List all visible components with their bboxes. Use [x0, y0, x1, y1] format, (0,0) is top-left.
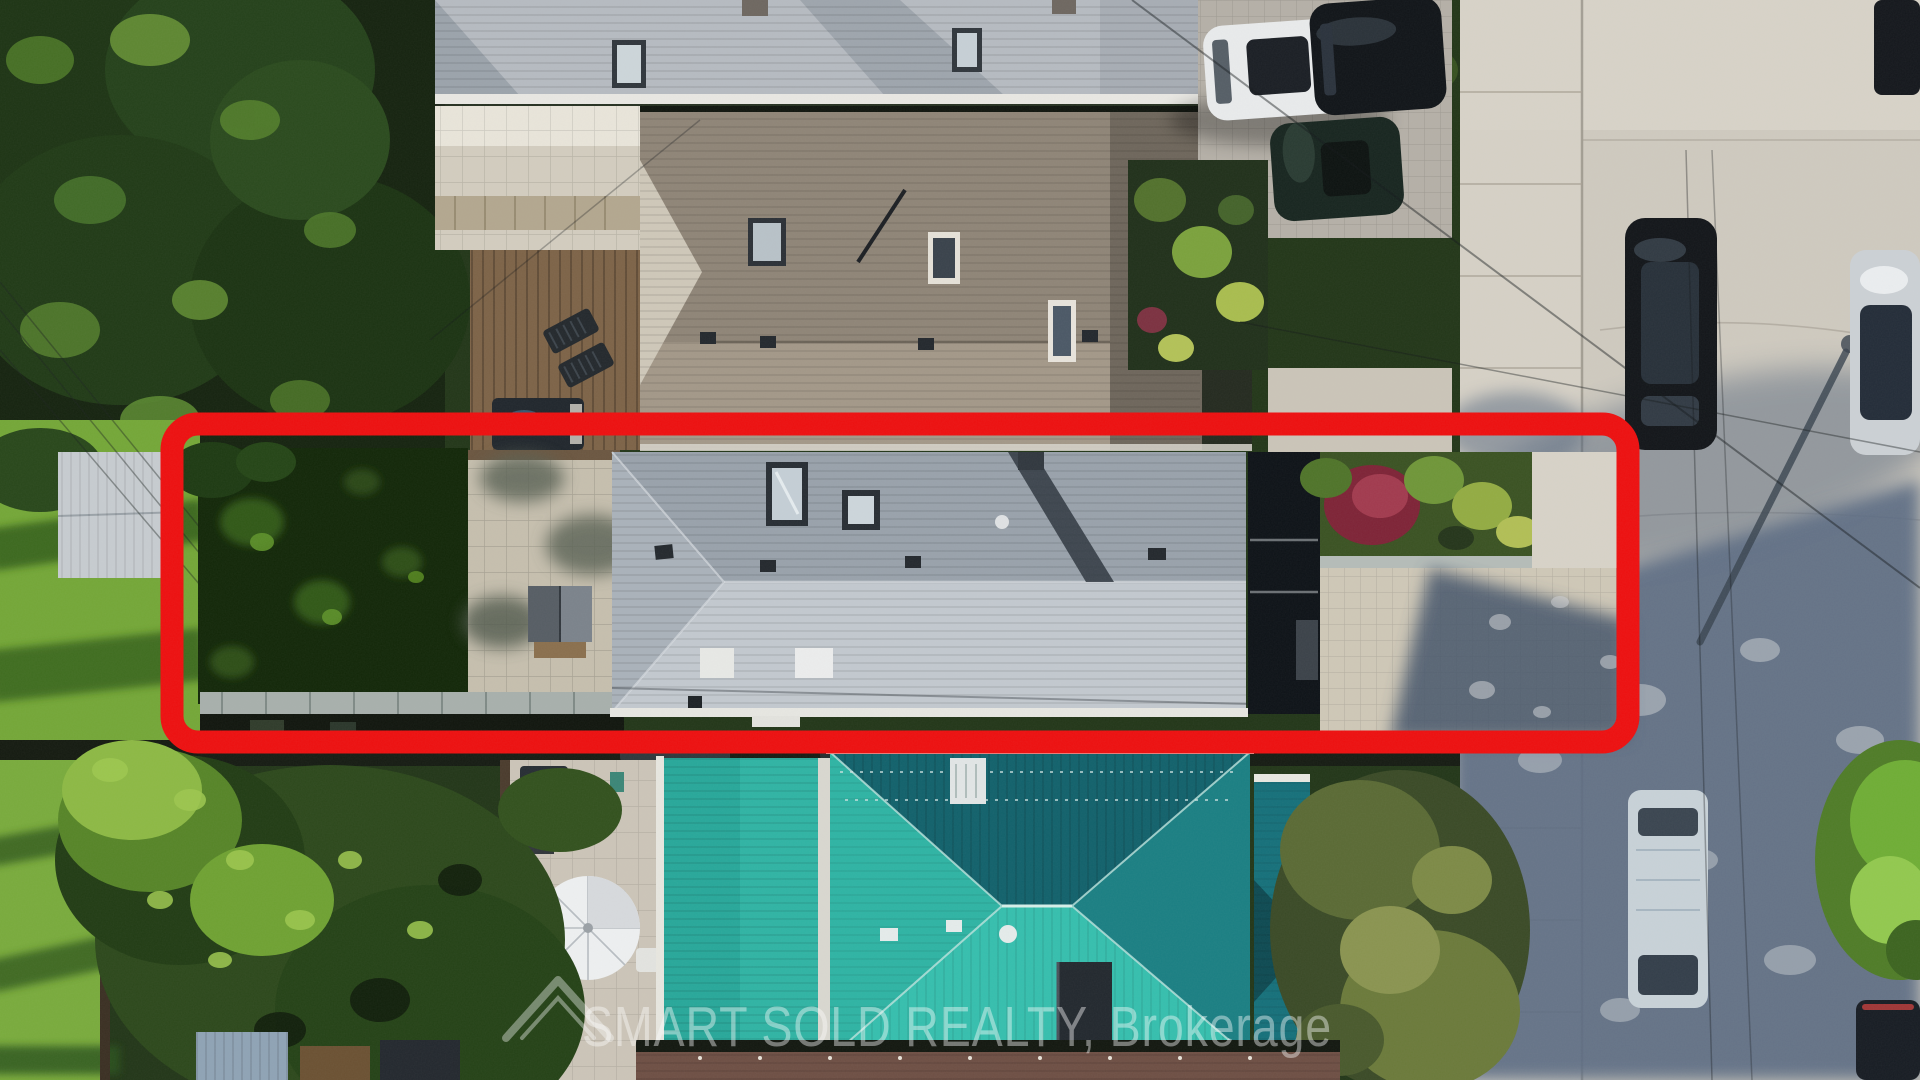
aerial-photo-stage: SMART SOLD REALTY, Brokerage — [0, 0, 1920, 1080]
aerial-photo: SMART SOLD REALTY, Brokerage — [0, 0, 1920, 1080]
photo-grain-overlay — [0, 0, 1920, 1080]
